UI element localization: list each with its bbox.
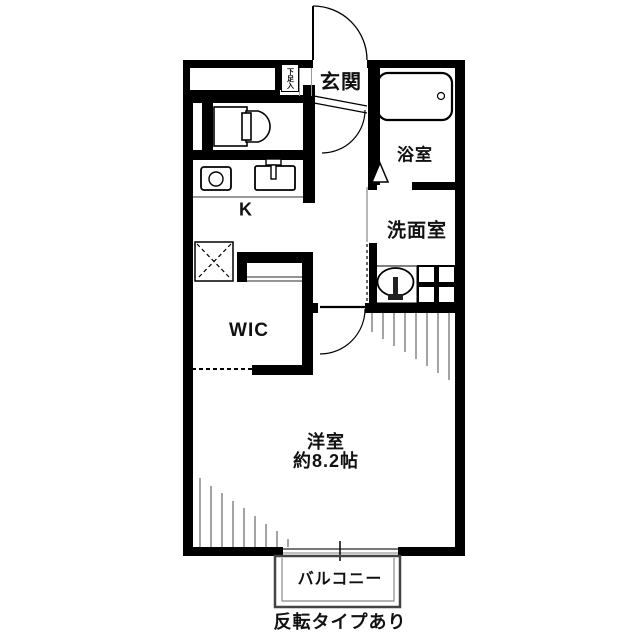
room-door bbox=[320, 307, 365, 354]
washing-machine-pan bbox=[418, 266, 455, 303]
shoe-cabinet-label: 下足入 bbox=[287, 68, 294, 89]
refrigerator-space bbox=[195, 242, 233, 281]
washroom-label: 洗面室 bbox=[387, 216, 447, 243]
kitchen-label: K bbox=[239, 200, 253, 221]
washbasin bbox=[373, 266, 417, 303]
hatch-bottom-left bbox=[200, 478, 288, 547]
floorplan: 下足入 bbox=[0, 0, 640, 640]
note-label: 反転タイプあり bbox=[274, 608, 407, 634]
genkan-label: 玄関 bbox=[320, 66, 362, 95]
balcony-label: バルコニー bbox=[298, 565, 383, 589]
bath-folding-door bbox=[372, 163, 388, 182]
main-room-size: 約8.2帖 bbox=[293, 447, 359, 473]
wic-label: WIC bbox=[229, 320, 269, 342]
bathtub bbox=[378, 73, 452, 120]
shoe-cabinet-label-box: 下足入 bbox=[281, 64, 299, 92]
entrance-door bbox=[313, 6, 367, 60]
lineart-layer bbox=[0, 0, 640, 640]
stove bbox=[201, 167, 231, 190]
kitchen-sink bbox=[255, 159, 295, 190]
wic-shelf bbox=[247, 277, 302, 281]
toilet bbox=[214, 107, 270, 146]
hatch-top-right bbox=[372, 313, 449, 380]
balcony-window bbox=[283, 541, 398, 561]
genkan-step bbox=[314, 96, 367, 153]
bathroom-label: 浴室 bbox=[397, 141, 433, 166]
